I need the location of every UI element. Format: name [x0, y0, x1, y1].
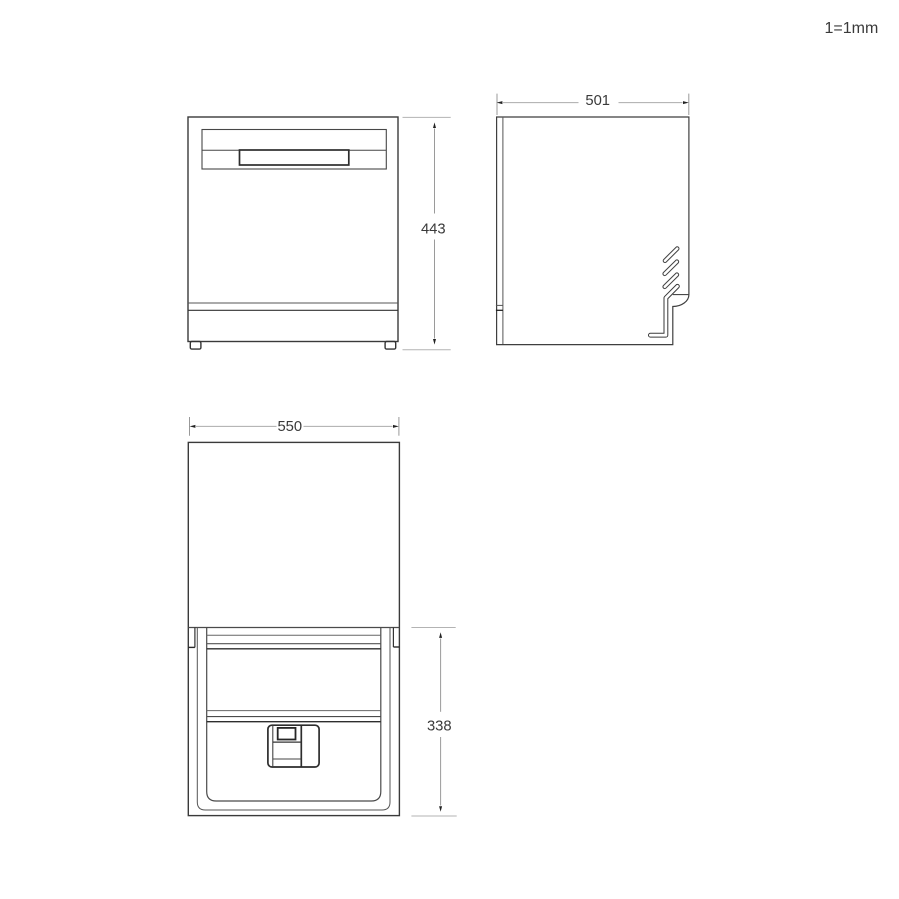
svg-text:550: 550	[277, 419, 302, 435]
svg-text:501: 501	[585, 93, 610, 109]
svg-text:443: 443	[421, 221, 446, 237]
svg-text:1=1mm: 1=1mm	[825, 20, 879, 37]
svg-text:338: 338	[427, 719, 452, 735]
